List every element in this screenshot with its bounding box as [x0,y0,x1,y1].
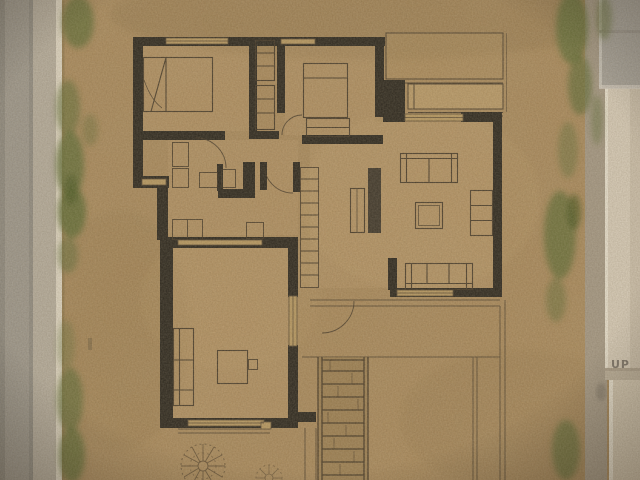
site-plan-render: UP [0,0,640,480]
vignette [0,0,640,480]
